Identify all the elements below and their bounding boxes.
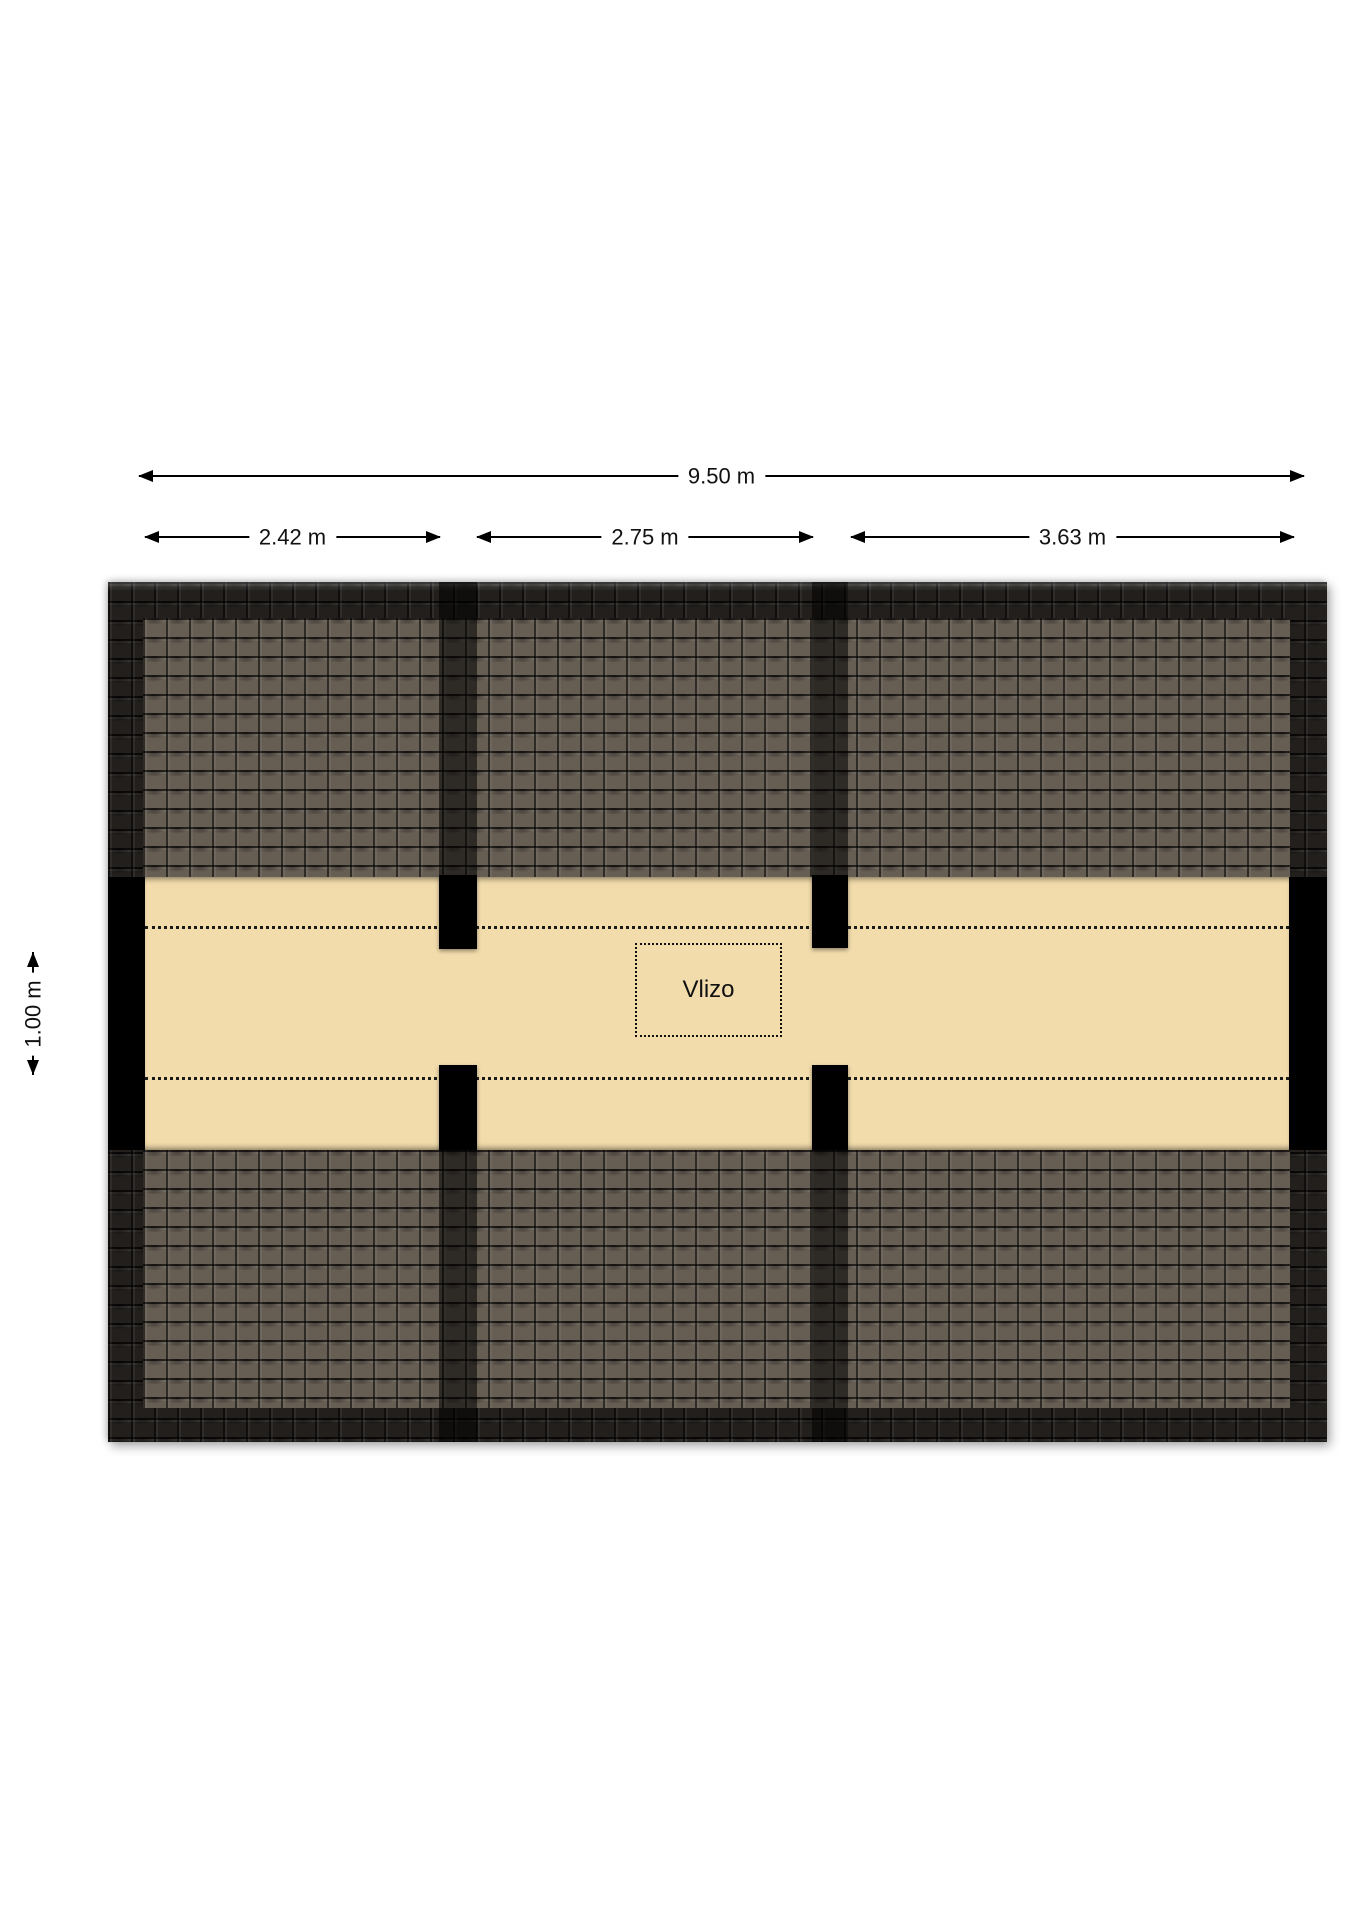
wall-stub-top-left xyxy=(439,875,477,949)
wall-right xyxy=(1289,877,1327,1150)
wall-left xyxy=(108,877,145,1150)
building-outline: Vlizo xyxy=(108,582,1327,1442)
dimension-label: 2.42 m xyxy=(249,523,336,551)
dimension-label: 1.00 m xyxy=(19,972,47,1055)
roof-wall-stripe-top-right xyxy=(812,582,848,877)
loft-hatch-outline: Vlizo xyxy=(635,943,782,1037)
arrowhead-left-icon xyxy=(476,531,491,543)
arrowhead-left-icon xyxy=(144,531,159,543)
roof-wall-stripe-top-left xyxy=(439,582,477,877)
wall-stub-bottom-right xyxy=(812,1065,848,1150)
dimension-label: 3.63 m xyxy=(1029,523,1116,551)
room-label: Vlizo xyxy=(682,976,734,1004)
arrowhead-right-icon xyxy=(426,531,441,543)
clearance-line-upper xyxy=(145,926,1289,929)
arrowhead-right-icon xyxy=(1280,531,1295,543)
floorplan-canvas: 9.50 m 2.42 m 2.75 m 3.63 m 1.00 m xyxy=(0,0,1358,1920)
arrowhead-up-icon xyxy=(27,952,39,967)
arrowhead-right-icon xyxy=(1290,470,1305,482)
roof-wall-stripe-bottom-right xyxy=(812,1150,848,1442)
clearance-line-lower xyxy=(145,1077,1289,1080)
roof-wall-stripe-bottom-left xyxy=(439,1150,477,1442)
wall-stub-bottom-left xyxy=(439,1065,477,1150)
arrowhead-left-icon xyxy=(138,470,153,482)
wall-stub-top-right xyxy=(812,875,848,948)
arrowhead-right-icon xyxy=(799,531,814,543)
dimension-label: 9.50 m xyxy=(678,462,765,490)
dimension-label: 2.75 m xyxy=(601,523,688,551)
arrowhead-down-icon xyxy=(27,1060,39,1075)
arrowhead-left-icon xyxy=(850,531,865,543)
dimension-corridor-height: 1.00 m xyxy=(16,952,50,1075)
